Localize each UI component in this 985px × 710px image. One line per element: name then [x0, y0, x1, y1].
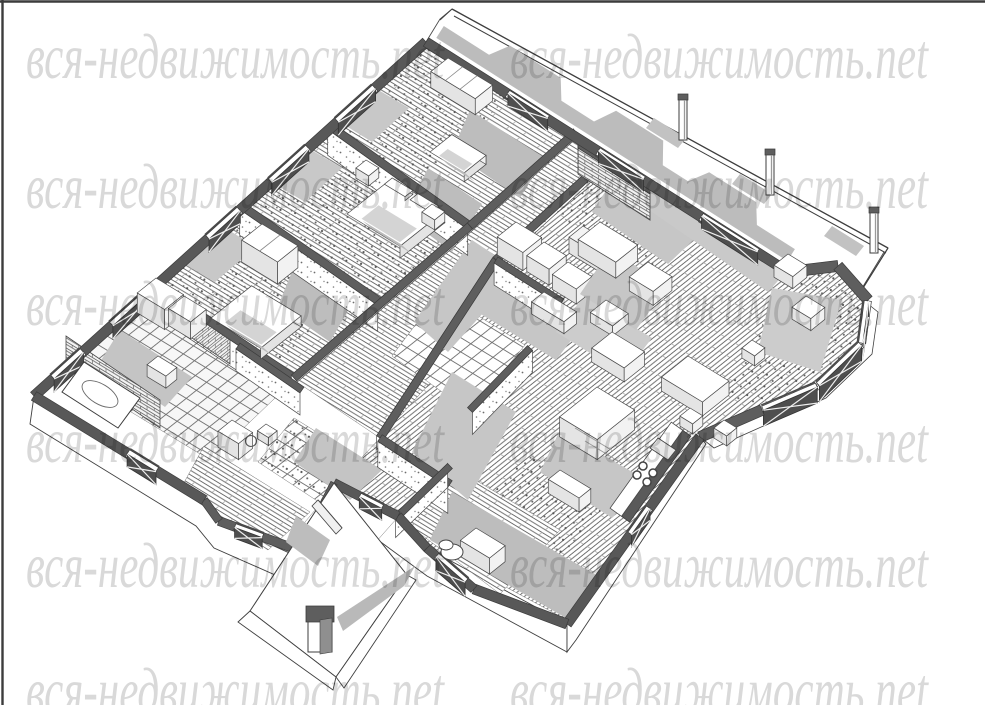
svg-text:вся-недвижимость.net: вся-недвижимость.net [510, 655, 929, 705]
svg-text:вся-недвижимость.net: вся-недвижимость.net [510, 268, 929, 339]
svg-text:вся-недвижимость.net: вся-недвижимость.net [26, 151, 445, 222]
svg-text:вся-недвижимость.net: вся-недвижимость.net [26, 655, 445, 705]
svg-text:вся-недвижимость.net: вся-недвижимость.net [510, 405, 929, 476]
svg-text:вся-недвижимость.net: вся-недвижимость.net [26, 268, 445, 339]
svg-text:вся-недвижимость.net: вся-недвижимость.net [26, 21, 445, 92]
svg-text:вся-недвижимость.net: вся-недвижимость.net [26, 405, 445, 476]
svg-text:вся-недвижимость.net: вся-недвижимость.net [26, 530, 445, 601]
svg-text:вся-недвижимость.net: вся-недвижимость.net [510, 151, 929, 222]
svg-text:вся-недвижимость.net: вся-недвижимость.net [510, 530, 929, 601]
svg-text:вся-недвижимость.net: вся-недвижимость.net [510, 21, 929, 92]
